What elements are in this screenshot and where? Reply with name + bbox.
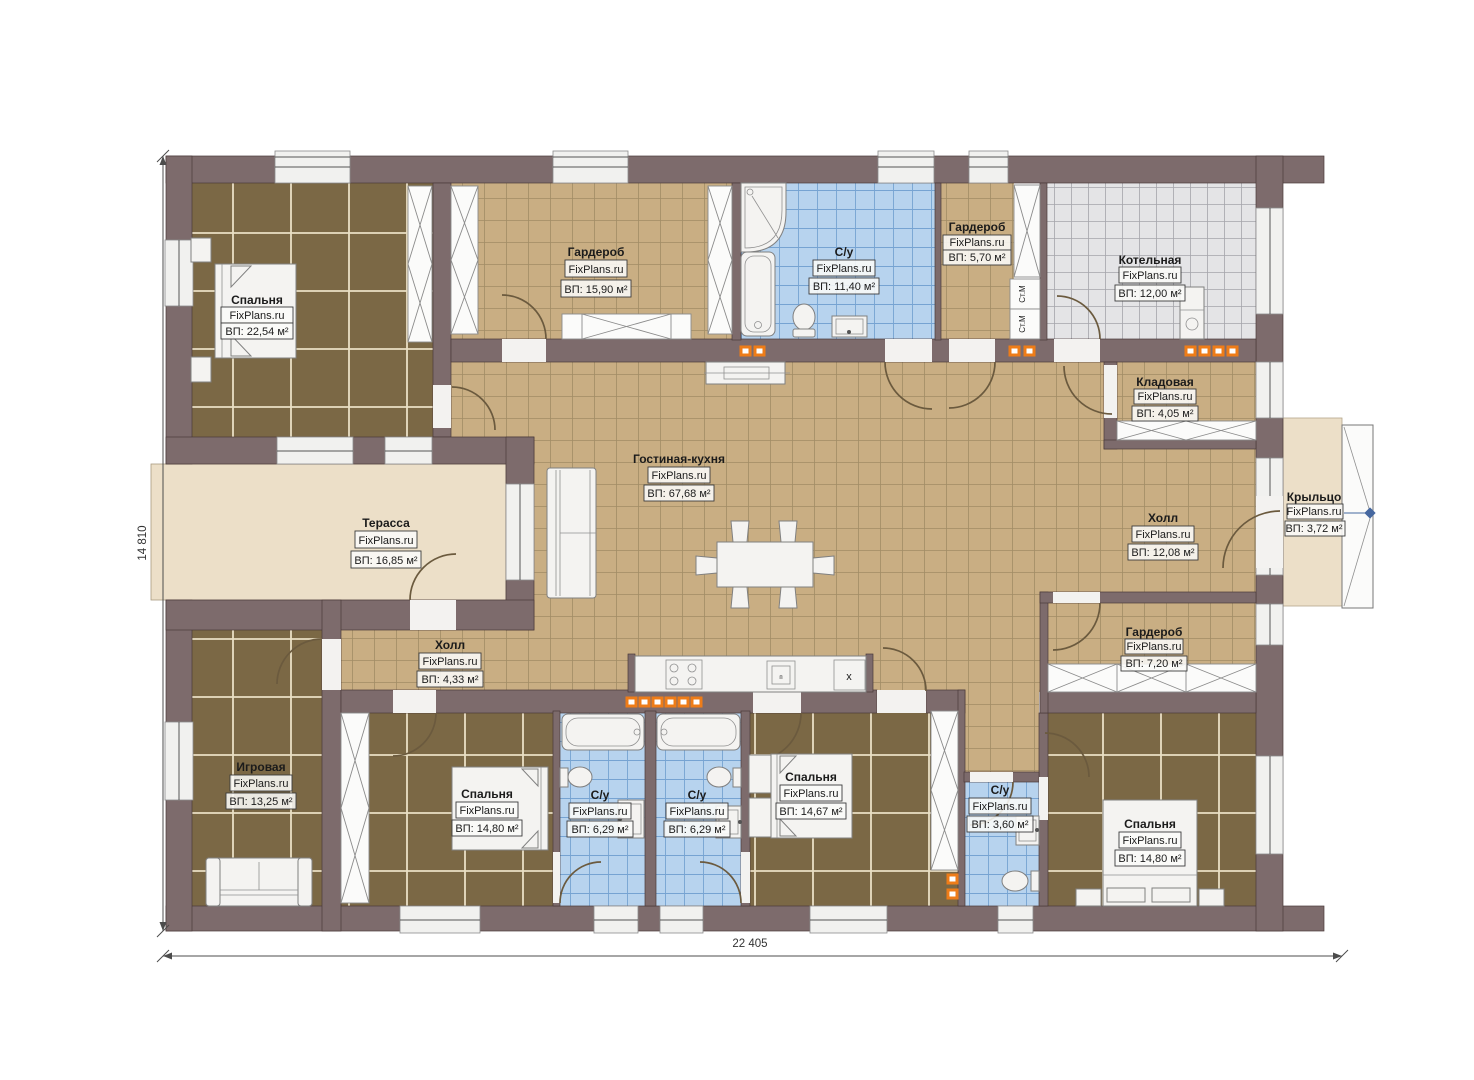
- svg-text:ВП: 13,25 м²: ВП: 13,25 м²: [229, 796, 293, 808]
- svg-text:FixPlans.ru: FixPlans.ru: [1286, 506, 1341, 518]
- svg-text:Спальня: Спальня: [231, 293, 283, 307]
- svg-text:Ст.М: Ст.М: [1018, 285, 1027, 303]
- svg-text:п: п: [779, 675, 782, 681]
- svg-text:Гардероб: Гардероб: [949, 220, 1006, 234]
- svg-text:FixPlans.ru: FixPlans.ru: [949, 237, 1004, 249]
- svg-text:ВП: 14,80 м²: ВП: 14,80 м²: [1118, 853, 1182, 865]
- svg-text:Гардероб: Гардероб: [1126, 625, 1183, 639]
- svg-text:ВП: 11,40 м²: ВП: 11,40 м²: [813, 281, 876, 293]
- svg-text:FixPlans.ru: FixPlans.ru: [1122, 835, 1177, 847]
- svg-text:ВП: 67,68 м²: ВП: 67,68 м²: [647, 488, 711, 500]
- svg-text:Терасса: Терасса: [362, 516, 410, 530]
- svg-text:С/у: С/у: [591, 788, 610, 802]
- svg-text:ВП: 6,29 м²: ВП: 6,29 м²: [668, 824, 725, 836]
- svg-text:FixPlans.ru: FixPlans.ru: [358, 535, 413, 547]
- svg-text:ВП: 15,90 м²: ВП: 15,90 м²: [564, 284, 628, 296]
- svg-text:FixPlans.ru: FixPlans.ru: [568, 264, 623, 276]
- svg-text:ВП: 12,00 м²: ВП: 12,00 м²: [1118, 288, 1182, 300]
- svg-text:FixPlans.ru: FixPlans.ru: [572, 806, 627, 818]
- svg-text:22 405: 22 405: [732, 938, 767, 950]
- svg-text:FixPlans.ru: FixPlans.ru: [669, 806, 724, 818]
- svg-text:FixPlans.ru: FixPlans.ru: [1135, 529, 1190, 541]
- svg-text:FixPlans.ru: FixPlans.ru: [1137, 391, 1192, 403]
- svg-text:Котельная: Котельная: [1119, 253, 1182, 267]
- svg-text:ВП: 4,33 м²: ВП: 4,33 м²: [421, 674, 478, 686]
- svg-text:ВП: 14,67 м²: ВП: 14,67 м²: [779, 806, 843, 818]
- svg-text:С/у: С/у: [991, 783, 1010, 797]
- svg-text:Гардероб: Гардероб: [568, 245, 625, 259]
- svg-text:х: х: [846, 671, 852, 683]
- svg-text:ВП: 4,05 м²: ВП: 4,05 м²: [1136, 408, 1193, 420]
- svg-text:ВП: 3,60 м²: ВП: 3,60 м²: [971, 819, 1028, 831]
- svg-text:FixPlans.ru: FixPlans.ru: [459, 805, 514, 817]
- svg-text:Спальня: Спальня: [785, 770, 837, 784]
- svg-text:С/у: С/у: [835, 245, 854, 259]
- svg-text:FixPlans.ru: FixPlans.ru: [229, 310, 284, 322]
- svg-text:FixPlans.ru: FixPlans.ru: [422, 656, 477, 668]
- svg-text:ВП: 22,54 м²: ВП: 22,54 м²: [225, 326, 289, 338]
- svg-text:ВП: 6,29 м²: ВП: 6,29 м²: [571, 824, 628, 836]
- svg-text:Холл: Холл: [1148, 511, 1178, 525]
- svg-text:Ст.М: Ст.М: [1018, 315, 1027, 333]
- svg-text:FixPlans.ru: FixPlans.ru: [972, 801, 1027, 813]
- svg-text:FixPlans.ru: FixPlans.ru: [1122, 270, 1177, 282]
- svg-text:ВП: 5,70 м²: ВП: 5,70 м²: [948, 252, 1005, 264]
- svg-text:ВП: 14,80 м²: ВП: 14,80 м²: [455, 823, 519, 835]
- svg-text:FixPlans.ru: FixPlans.ru: [233, 778, 288, 790]
- svg-text:С/у: С/у: [688, 788, 707, 802]
- svg-text:FixPlans.ru: FixPlans.ru: [816, 263, 871, 275]
- svg-text:ВП: 16,85 м²: ВП: 16,85 м²: [354, 555, 418, 567]
- svg-text:FixPlans.ru: FixPlans.ru: [1126, 641, 1181, 653]
- svg-text:ВП: 12,08 м²: ВП: 12,08 м²: [1131, 547, 1195, 559]
- svg-text:14 810: 14 810: [137, 525, 149, 560]
- svg-text:FixPlans.ru: FixPlans.ru: [651, 470, 706, 482]
- svg-text:Спальня: Спальня: [1124, 817, 1176, 831]
- svg-text:Кладовая: Кладовая: [1136, 375, 1193, 389]
- svg-text:Игровая: Игровая: [236, 760, 285, 774]
- svg-text:ВП: 3,72 м²: ВП: 3,72 м²: [1285, 523, 1342, 535]
- svg-text:Крыльцо: Крыльцо: [1287, 490, 1342, 504]
- svg-text:Холл: Холл: [435, 638, 465, 652]
- svg-text:Гостиная-кухня: Гостиная-кухня: [633, 452, 725, 466]
- svg-text:Спальня: Спальня: [461, 787, 513, 801]
- svg-text:ВП: 7,20 м²: ВП: 7,20 м²: [1125, 658, 1182, 670]
- svg-text:FixPlans.ru: FixPlans.ru: [783, 788, 838, 800]
